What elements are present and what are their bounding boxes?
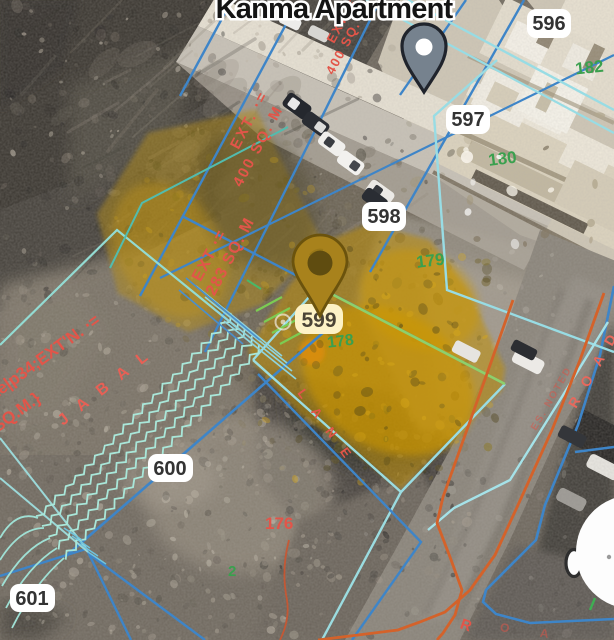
- svg-text:180: 180: [487, 148, 517, 170]
- svg-text:179: 179: [415, 250, 445, 272]
- svg-text:182: 182: [574, 57, 604, 79]
- svg-text:176: 176: [265, 514, 293, 533]
- svg-text:601: 601: [15, 588, 48, 610]
- svg-text:598: 598: [367, 206, 400, 228]
- svg-text:596: 596: [532, 13, 565, 35]
- svg-text:600: 600: [153, 458, 186, 480]
- svg-text:178: 178: [326, 332, 355, 352]
- svg-text:597: 597: [451, 109, 484, 131]
- svg-text:2: 2: [228, 563, 236, 580]
- svg-text:Kanma Apartment: Kanma Apartment: [216, 0, 454, 25]
